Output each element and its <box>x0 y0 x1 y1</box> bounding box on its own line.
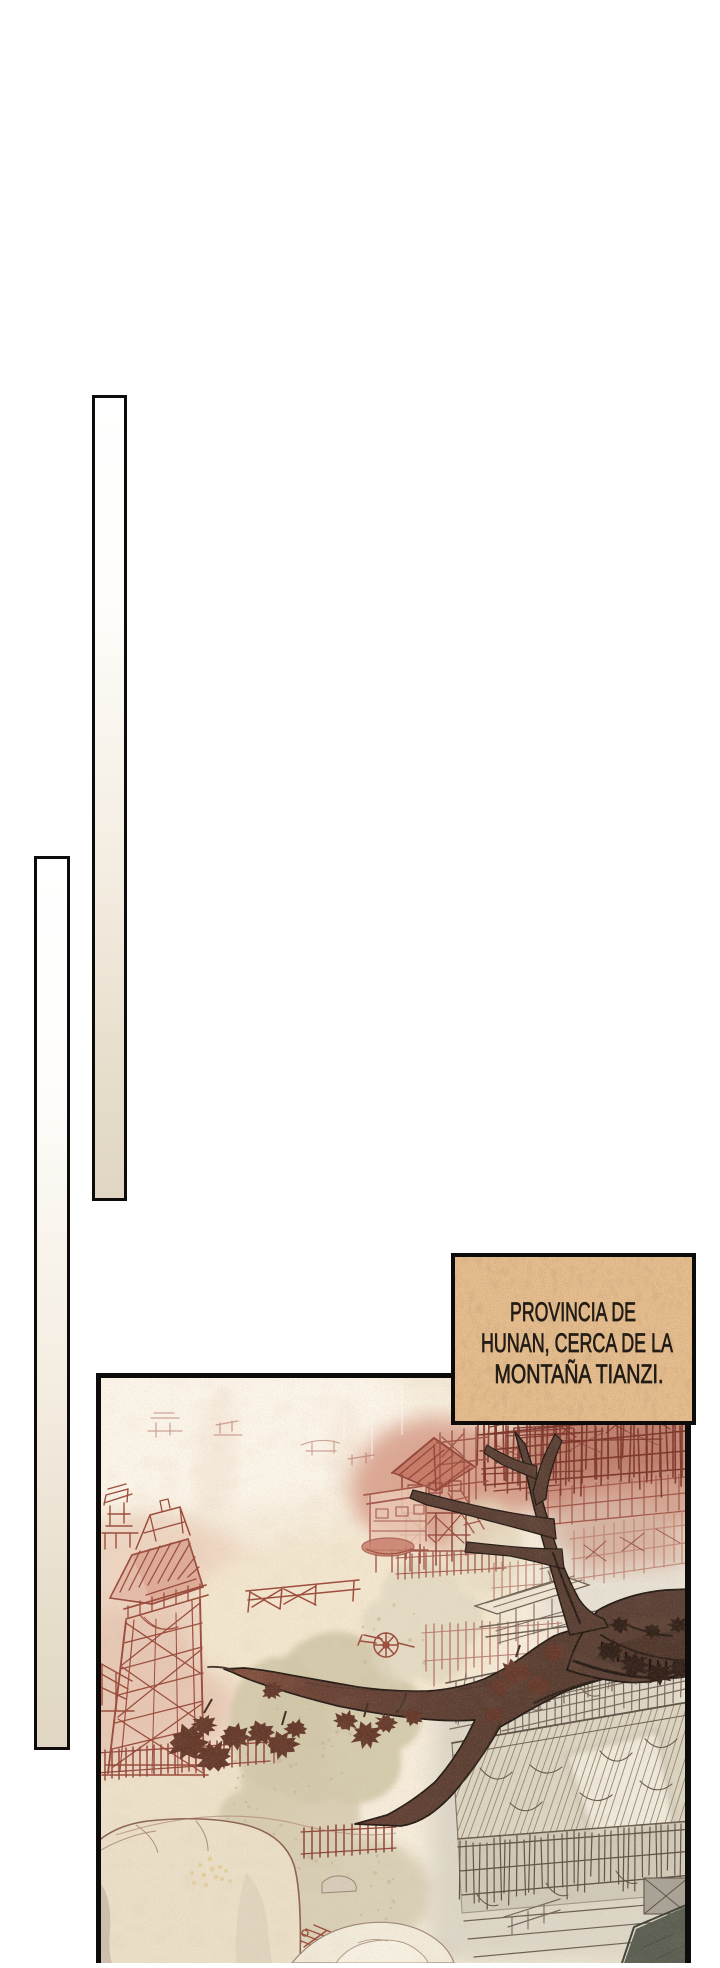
svg-text:MONTAÑA TIANZI.: MONTAÑA TIANZI. <box>495 1359 664 1389</box>
svg-text:PROVINCIA DE: PROVINCIA DE <box>510 1297 636 1327</box>
svg-text:HUNAN, CERCA DE LA: HUNAN, CERCA DE LA <box>481 1328 673 1358</box>
